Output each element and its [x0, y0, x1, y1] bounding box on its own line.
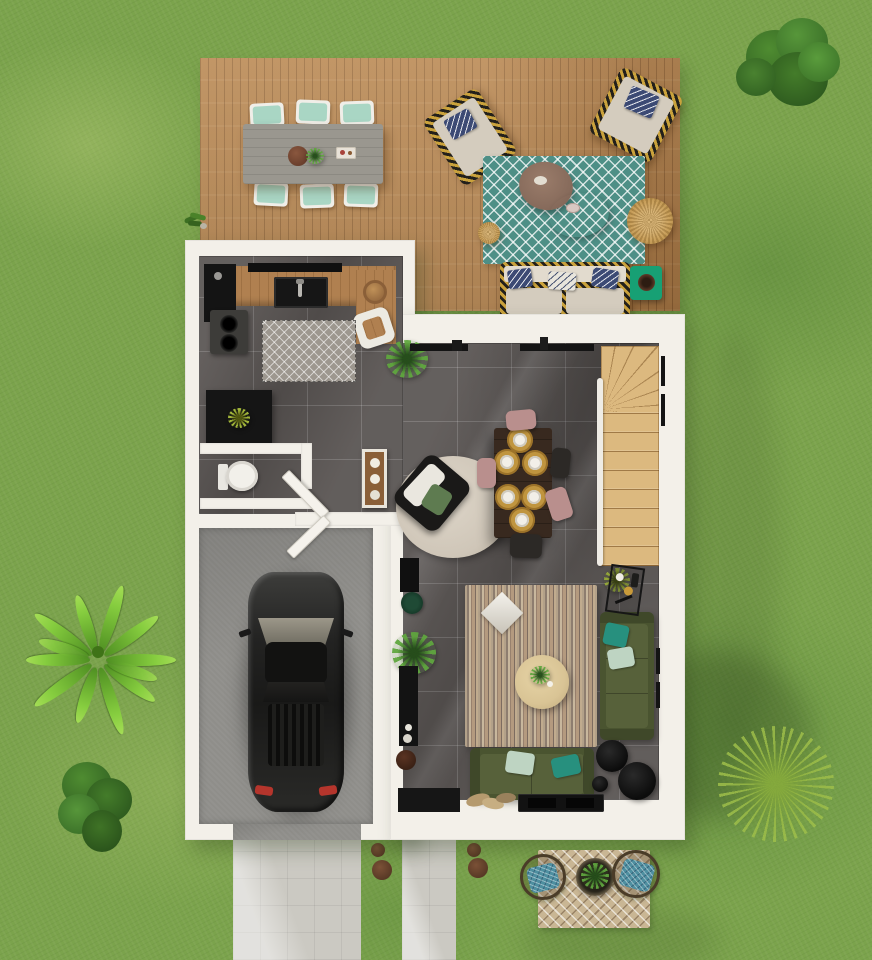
- dining-chair[interactable]: [477, 458, 496, 488]
- dining-chair[interactable]: [549, 447, 571, 479]
- bush: [728, 8, 848, 120]
- placemat: [509, 507, 535, 533]
- outdoor-chair[interactable]: [300, 183, 335, 208]
- serving-tray[interactable]: [336, 147, 356, 159]
- placemat: [495, 484, 521, 510]
- tray-food: [340, 150, 345, 155]
- mint-pillow: [505, 750, 536, 776]
- car[interactable]: [248, 572, 344, 812]
- table-decor: [547, 681, 553, 687]
- wc-wall: [301, 443, 312, 489]
- toilet[interactable]: [226, 461, 258, 491]
- bar-cart[interactable]: [605, 564, 645, 616]
- floral-cushion: [618, 857, 656, 893]
- outdoor-chair[interactable]: [340, 100, 375, 125]
- outdoor-chair[interactable]: [344, 182, 379, 207]
- floor-plan-render: [0, 0, 872, 960]
- sofa-bottom[interactable]: [470, 748, 594, 800]
- sofa-right[interactable]: [600, 612, 654, 740]
- round-stool[interactable]: [363, 280, 387, 304]
- straight-steps: [601, 412, 659, 566]
- placemat: [494, 449, 520, 475]
- low-cabinet[interactable]: [206, 390, 272, 446]
- green-side-table[interactable]: [630, 266, 662, 300]
- side-door-frame[interactable]: [661, 394, 665, 426]
- table-plant[interactable]: [306, 148, 324, 164]
- hall-wall: [295, 512, 403, 526]
- staircase[interactable]: [601, 346, 659, 566]
- grass-tuft: [182, 212, 210, 230]
- stepping-stone: [372, 860, 392, 880]
- winder-steps: [601, 346, 659, 412]
- wc-wall: [200, 443, 312, 454]
- planter[interactable]: [401, 592, 423, 614]
- side-table-black[interactable]: [618, 762, 656, 800]
- media-unit[interactable]: [399, 666, 418, 746]
- kitchen-sink[interactable]: [274, 277, 328, 308]
- stepping-stone: [467, 843, 481, 857]
- stepping-stone: [371, 843, 385, 857]
- cooktop[interactable]: [248, 263, 342, 272]
- potted-plant[interactable]: [228, 408, 250, 428]
- planter-plant: [581, 863, 609, 889]
- placemat: [522, 450, 548, 476]
- window-sill-decor: [520, 344, 594, 351]
- window-frame: [656, 648, 660, 674]
- palm-tree: [20, 572, 176, 736]
- house-shadow-east: [690, 330, 780, 750]
- outdoor-chair[interactable]: [253, 181, 288, 207]
- driveway: [233, 838, 361, 960]
- faucet: [298, 283, 302, 297]
- tray-food: [348, 151, 352, 155]
- table-decor: [534, 176, 547, 185]
- garage-door-opening: [233, 824, 361, 840]
- window-frame: [656, 682, 660, 708]
- coffee-machine[interactable]: [210, 310, 248, 354]
- bowl[interactable]: [288, 146, 308, 166]
- wc-wall: [200, 498, 312, 509]
- car-roof: [265, 642, 327, 684]
- rear-window: [263, 682, 329, 702]
- teal-pillow: [602, 622, 630, 649]
- floral-cushion: [525, 862, 560, 894]
- jute-pouf[interactable]: [627, 198, 673, 244]
- chevron-pillow: [507, 267, 533, 289]
- dining-chair[interactable]: [505, 409, 537, 432]
- outdoor-sofa[interactable]: [500, 262, 630, 320]
- bistro-planter[interactable]: [576, 858, 614, 896]
- table-decor: [566, 203, 580, 213]
- pot[interactable]: [396, 750, 416, 770]
- window-sill-decor: [452, 340, 462, 351]
- window-sill-decor: [540, 337, 548, 350]
- door-mat[interactable]: [398, 788, 460, 812]
- stepping-stone: [468, 858, 488, 878]
- tv-console[interactable]: [518, 794, 604, 812]
- kettle: [214, 272, 222, 280]
- bush: [48, 752, 144, 862]
- chevron-pillow: [591, 267, 620, 290]
- chevron-pillow: [547, 271, 576, 291]
- round-coffee-table[interactable]: [515, 655, 569, 709]
- side-table-black[interactable]: [592, 776, 608, 792]
- side-door-frame[interactable]: [661, 356, 665, 386]
- kitchen-mat[interactable]: [262, 320, 356, 382]
- dining-chair[interactable]: [510, 533, 543, 558]
- jute-pouf[interactable]: [478, 222, 500, 244]
- outdoor-chair[interactable]: [296, 99, 331, 124]
- walkway: [402, 838, 456, 960]
- console-table[interactable]: [362, 449, 387, 508]
- rear-deck-louvers: [268, 704, 324, 766]
- stair-railing: [597, 378, 603, 566]
- placemat: [521, 484, 547, 510]
- media-unit[interactable]: [400, 558, 419, 592]
